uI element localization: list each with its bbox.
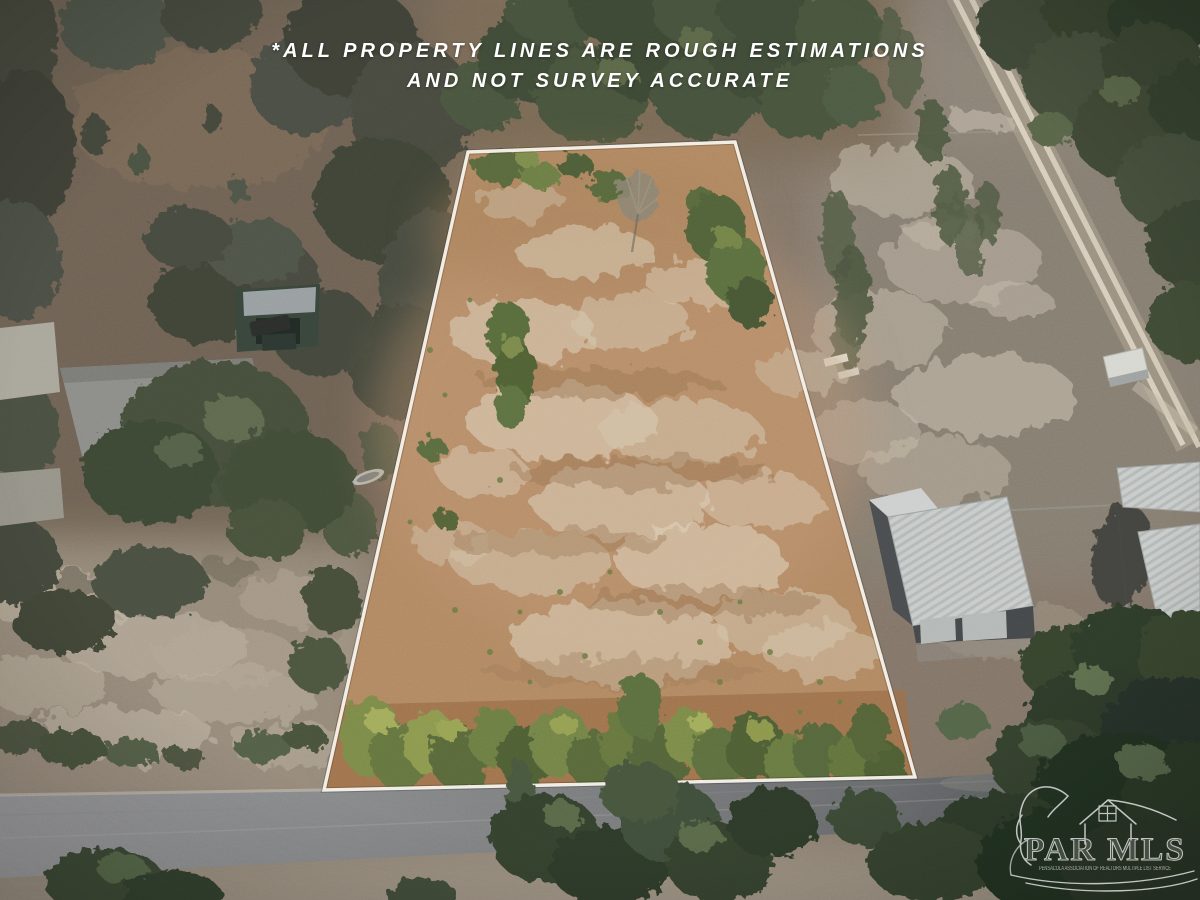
watermark-title: PAR MLS: [1024, 832, 1186, 868]
aerial-photo: PAR MLS PENSACOLA ASSOCIATION OF REALTOR…: [0, 0, 1200, 900]
aerial-photo-canvas: PAR MLS PENSACOLA ASSOCIATION OF REALTOR…: [0, 0, 1200, 900]
watermark-subtitle: PENSACOLA ASSOCIATION OF REALTORS MULTIP…: [1039, 866, 1171, 872]
photo-grain: [0, 0, 1200, 900]
